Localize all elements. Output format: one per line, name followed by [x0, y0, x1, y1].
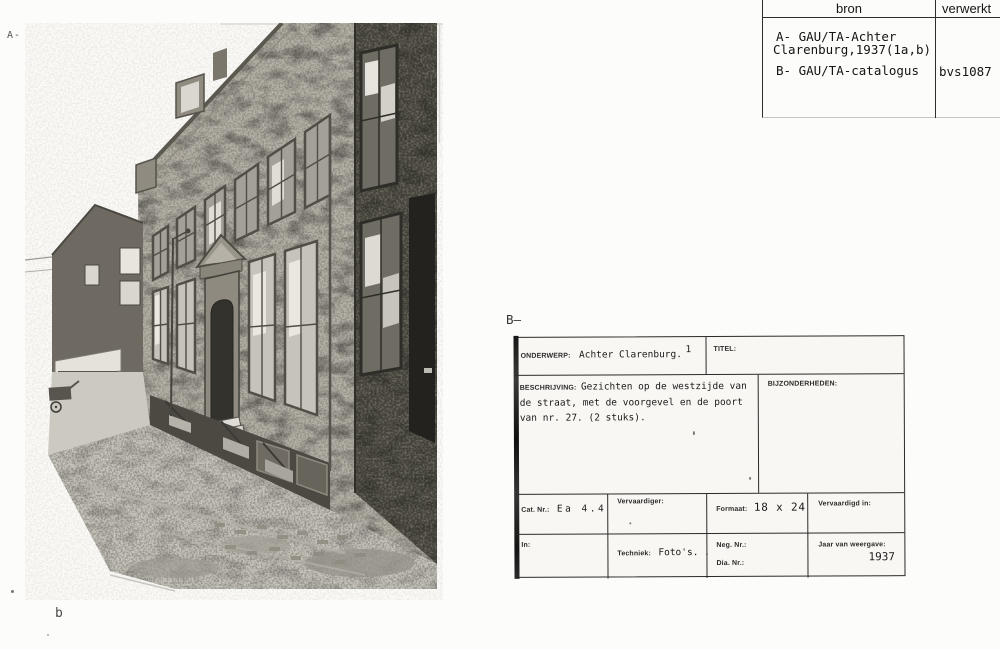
jaar-label: Jaar van weergave: [818, 541, 885, 548]
techniek-field: Techniek: Foto's. . [617, 542, 710, 560]
card-section-label-b: B— [506, 312, 521, 327]
bron-table: bron verwerkt A- GAU/TA-Achter Clarenbur… [762, 0, 1000, 118]
scan-speck [47, 634, 49, 636]
bron-entry-b: B- GAU/TA-catalogus [776, 63, 919, 78]
formaat-value: 18 x 24 [754, 501, 806, 514]
photo-label-a: A- [7, 30, 21, 41]
scan-speck [629, 522, 631, 524]
card-v-col2 [706, 494, 707, 578]
techniek-label: Techniek: [617, 550, 651, 557]
techniek-value: Foto's. . [658, 547, 710, 558]
card-row1-line [516, 373, 904, 376]
cat-nr-field: Cat. Nr.: Ea 4.4 [521, 498, 606, 516]
card-row2-line [516, 492, 904, 495]
street-photo-svg [25, 23, 443, 600]
dia-nr-label: Dia. Nr.: [716, 560, 744, 567]
street-photo [25, 23, 443, 600]
vervaardigd-in-label: Vervaardigd in: [818, 500, 871, 507]
bron-entry-a-line2: Clarenburg,1937(1a,b) [773, 42, 931, 57]
cat-nr-value: Ea 4.4 [557, 503, 606, 514]
card-v-onderwerp-titel [705, 337, 706, 374]
scan-speck [693, 431, 695, 435]
onderwerp-value: Achter Clarenburg. [579, 349, 682, 360]
verwerkt-header: verwerkt [942, 1, 991, 16]
titel-label: TITEL: [714, 346, 737, 353]
formaat-label: Formaat: [716, 506, 747, 513]
card-left-edge-smudge [513, 336, 519, 579]
onderwerp-label: ONDERWERP: [521, 353, 571, 360]
verwerkt-value: bvs1087 [939, 64, 992, 79]
near-facade [350, 23, 443, 568]
bron-header: bron [763, 1, 935, 16]
card-v-col3 [807, 494, 808, 578]
card-v-beschrijving-bijzonderheden [758, 375, 760, 493]
catalog-card: ONDERWERP: Achter Clarenburg. 1 TITEL: B… [514, 335, 905, 578]
onderwerp-field: ONDERWERP: Achter Clarenburg. [521, 344, 682, 363]
jaar-value: 1937 [868, 550, 895, 563]
bijzonderheden-label: BIJZONDERHEDEN: [768, 380, 838, 387]
cat-nr-label: Cat. Nr.: [521, 507, 549, 514]
neg-nr-label: Neg. Nr.: [716, 542, 746, 549]
photo-caption-b: b [55, 606, 63, 621]
beschrijving-field: BESCHRIJVING: Gezichten op de westzijde … [520, 378, 754, 425]
in-label: In: [521, 542, 530, 549]
beschrijving-label: BESCHRIJVING: [520, 385, 577, 392]
card-row3-line [516, 532, 904, 535]
scan-speck [11, 590, 14, 593]
scan-speck [749, 477, 751, 480]
card-v-col1 [607, 494, 608, 578]
bron-table-header-line [763, 17, 1000, 18]
onderwerp-number: 1 [686, 344, 692, 355]
formaat-field: Formaat: 18 x 24 [716, 498, 806, 516]
vervaardiger-label: Vervaardiger: [617, 498, 664, 505]
